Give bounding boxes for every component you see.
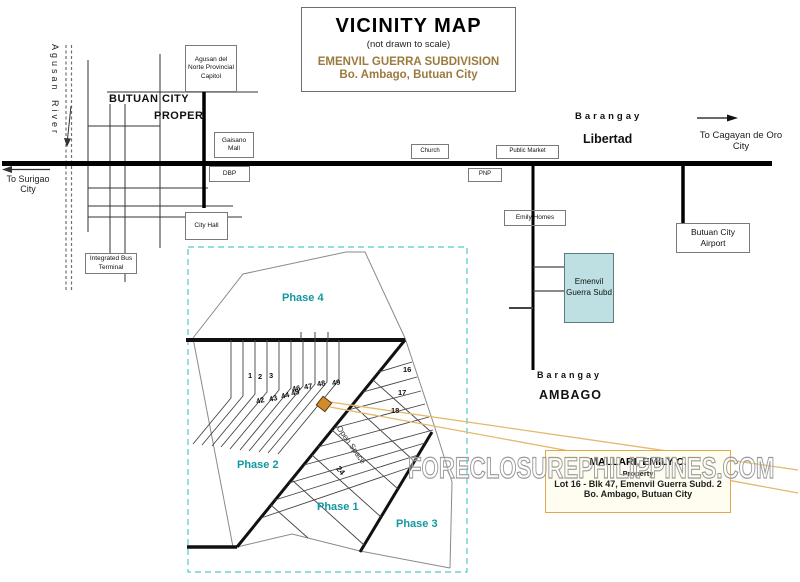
gaisano-mall-box: Gaisano Mall bbox=[214, 132, 254, 158]
proper-label: PROPER bbox=[154, 110, 203, 122]
major-roads bbox=[2, 92, 772, 370]
river-label-river: River bbox=[50, 100, 60, 136]
lot-number-48: 48 bbox=[316, 378, 326, 388]
phase-2-label: Phase 2 bbox=[237, 459, 279, 471]
lot-number-2: 2 bbox=[258, 372, 262, 381]
libertad-name: Libertad bbox=[583, 132, 632, 146]
lot-number-16: 16 bbox=[403, 365, 411, 374]
subdivision-name: EMENVIL GUERRA SUBDIVISION bbox=[302, 56, 515, 68]
emenvil-subd-box: Emenvil Guerra Subd bbox=[564, 253, 614, 323]
ambago-name: AMBAGO bbox=[539, 388, 602, 402]
subdivision-location: Bo. Ambago, Butuan City bbox=[302, 69, 515, 81]
lot-number-3: 3 bbox=[269, 371, 273, 380]
lot-number-18: 18 bbox=[391, 406, 399, 415]
to-cagayan-label: To Cagayan de Oro City bbox=[693, 131, 789, 153]
to-surigao-arrow bbox=[2, 166, 50, 173]
vicinity-map-page: VICINITY MAP (not drawn to scale) EMENVI… bbox=[0, 0, 800, 582]
plat-road-phase3 bbox=[360, 432, 432, 552]
phase-4-label: Phase 4 bbox=[282, 292, 324, 304]
phase-3-label: Phase 3 bbox=[396, 518, 438, 530]
watermark: FORECLOSUREPHILIPPINES.COM bbox=[408, 452, 774, 486]
city-hall-box: City Hall bbox=[185, 212, 228, 240]
phase-1-label: Phase 1 bbox=[317, 501, 359, 513]
barangay-libertad-label: Barangay bbox=[575, 111, 642, 122]
lot-lines-west bbox=[193, 340, 339, 454]
dbp-box: DBP bbox=[209, 166, 250, 182]
map-scale-note: (not drawn to scale) bbox=[302, 39, 515, 50]
lot-number-1: 1 bbox=[248, 371, 252, 380]
map-title: VICINITY MAP bbox=[302, 15, 515, 38]
lot-number-49: 49 bbox=[331, 377, 341, 387]
capitol-box: Agusan del Norte Provincial Capitol bbox=[185, 45, 237, 92]
subd-connectors bbox=[509, 267, 564, 308]
barangay-ambago-label: Barangay bbox=[537, 370, 602, 380]
public-market-box: Public Market bbox=[496, 145, 559, 159]
church-box: Church bbox=[411, 144, 449, 159]
airport-box: Butuan City Airport bbox=[676, 223, 750, 253]
butuan-city-label: BUTUAN CITY bbox=[109, 93, 189, 105]
title-box: VICINITY MAP (not drawn to scale) EMENVI… bbox=[301, 7, 516, 92]
emily-homes-box: Emily Homes bbox=[504, 210, 566, 226]
subject-lot-marker bbox=[316, 396, 331, 411]
property-location: Bo. Ambago, Butuan City bbox=[546, 489, 730, 499]
pnp-box: PNP bbox=[468, 168, 502, 182]
lot-number-46: 46 bbox=[291, 383, 301, 393]
river-label-agusan: Agusan bbox=[50, 44, 60, 93]
river-flow-arrow bbox=[64, 106, 71, 147]
bus-terminal-box: Integrated Bus Terminal bbox=[85, 253, 137, 274]
to-cagayan-arrow bbox=[697, 115, 738, 122]
to-surigao-label: To Surigao City bbox=[2, 174, 54, 195]
lot-number-47: 47 bbox=[303, 381, 313, 391]
agusan-river-lines bbox=[66, 45, 72, 290]
lot-number-17: 17 bbox=[398, 388, 406, 397]
